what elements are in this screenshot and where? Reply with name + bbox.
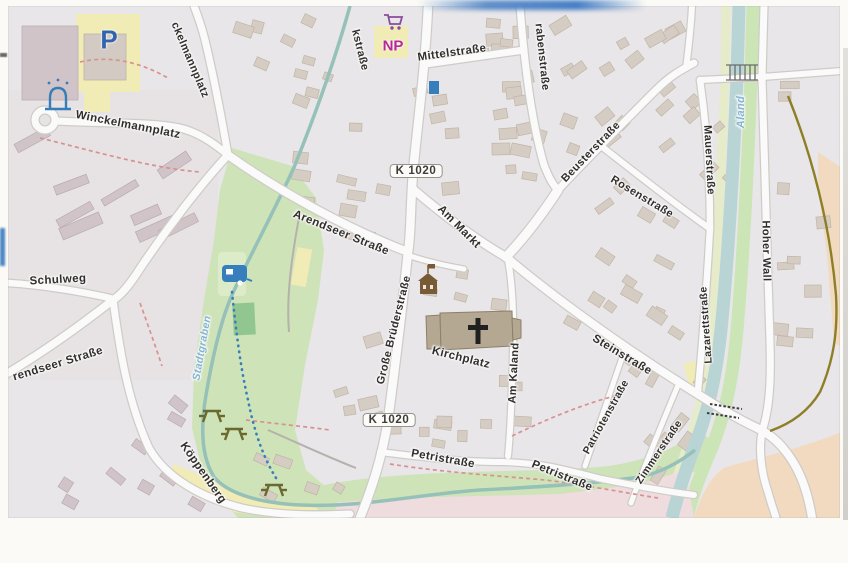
church-building-with-cross-icon xyxy=(426,311,521,350)
scan-artifact-blue-left xyxy=(0,228,5,266)
school-building-large xyxy=(22,26,78,100)
scan-artifact-blue-top xyxy=(418,0,646,10)
church-cross-icon xyxy=(419,524,438,548)
scanned-map-photo: kstraßeMittelstraßerabenstraßeBeusterstr… xyxy=(0,0,848,563)
bus-stop-icon xyxy=(429,81,439,94)
map-print-area: kstraßeMittelstraßerabenstraßeBeusterstr… xyxy=(0,0,848,563)
map-canvas xyxy=(0,0,848,563)
scan-edge-shadow xyxy=(843,48,848,520)
dark-green-area xyxy=(232,302,256,335)
scan-artifact-dash xyxy=(0,53,7,57)
building-in-parking-lot xyxy=(84,34,126,80)
